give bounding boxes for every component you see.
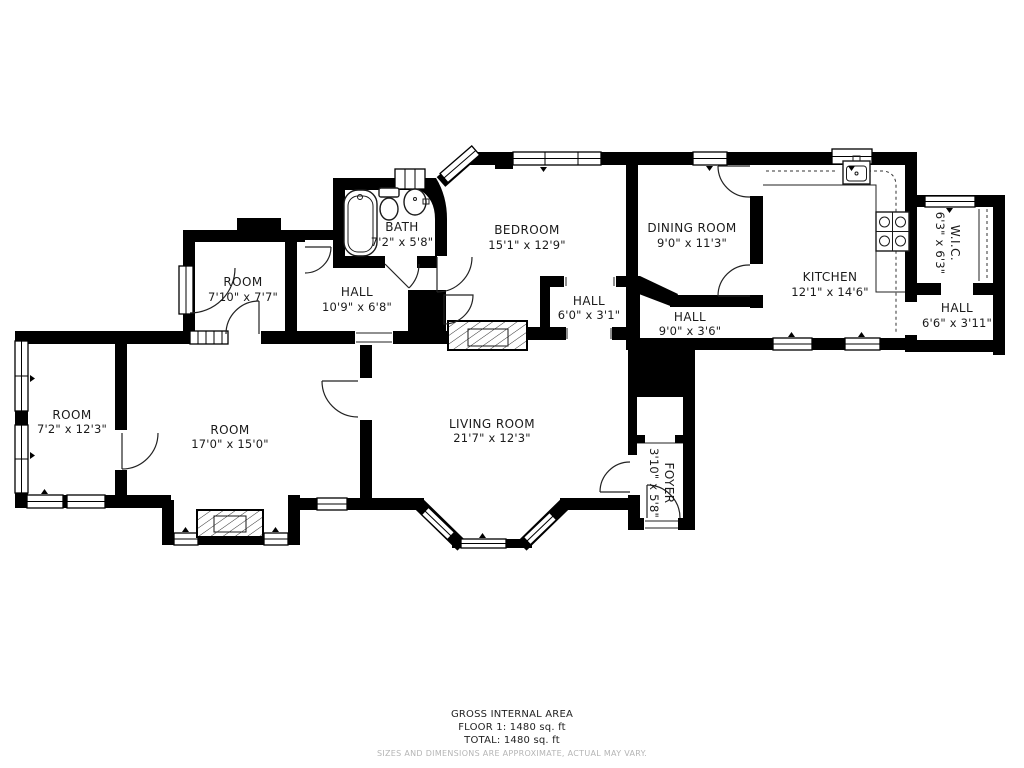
room-label-hall-mid: HALL 9'0" x 3'6" — [659, 310, 722, 338]
room-label-wic: W.I.C. 6'3" x 6'3" — [933, 212, 962, 275]
room-big-bay-window-1 — [174, 533, 198, 545]
room-upper-window — [179, 266, 193, 314]
living-bay-window-left — [422, 507, 455, 539]
room-name: ROOM — [223, 275, 262, 289]
room-name: W.I.C. — [948, 225, 962, 261]
room-dims: 17'0" x 15'0" — [191, 437, 269, 451]
room-name: HALL — [674, 310, 706, 324]
stove-icon — [876, 212, 909, 251]
room-name: DINING ROOM — [647, 221, 736, 235]
bedroom-door — [437, 257, 472, 292]
room-dims: 7'2" x 5'8" — [371, 235, 434, 249]
kitchen-counter — [763, 171, 905, 334]
room-name: ROOM — [52, 408, 91, 422]
room-name: KITCHEN — [803, 270, 858, 284]
gross-internal-area-label: GROSS INTERNAL AREA — [451, 709, 573, 720]
room-left-side-window-2 — [15, 425, 28, 493]
floor-area-value: FLOOR 1: 1480 sq. ft — [458, 722, 566, 733]
room-name: HALL — [941, 301, 973, 315]
room-name: LIVING ROOM — [449, 417, 535, 431]
living-foyer-door — [600, 462, 630, 492]
room-dims: 6'3" x 6'3" — [933, 212, 947, 275]
room-dims: 3'10" x 5'8" — [647, 448, 661, 518]
room-label-hall-center: HALL 6'0" x 3'1" — [558, 294, 621, 322]
room-left-bottom-window-1 — [27, 495, 63, 508]
room-dims: 15'1" x 12'9" — [488, 238, 566, 252]
bath-window — [395, 169, 425, 189]
room-big-door — [322, 381, 358, 417]
room-label-room-left: ROOM 7'2" x 12'3" — [37, 408, 107, 436]
room-upper-door — [226, 301, 259, 334]
room-dims: 6'0" x 3'1" — [558, 308, 621, 322]
room-label-room-big: ROOM 17'0" x 15'0" — [191, 423, 269, 451]
room-name: BEDROOM — [494, 223, 559, 237]
room-dims: 21'7" x 12'3" — [453, 431, 531, 445]
floor-plan: BATH 7'2" x 5'8" BEDROOM 15'1" x 12'9" D… — [0, 0, 1024, 768]
room-big-south-window — [317, 498, 347, 510]
dining-top-door — [718, 166, 750, 197]
wic-window — [925, 196, 975, 207]
dining-window — [693, 152, 727, 165]
room-label-room-upper: ROOM 7'10" x 7'7" — [208, 275, 278, 304]
room-label-foyer: FOYER 3'10" x 5'8" — [647, 448, 676, 518]
room-label-hall-east: HALL 6'6" x 3'11" — [922, 301, 992, 330]
footer: GROSS INTERNAL AREA FLOOR 1: 1480 sq. ft… — [377, 709, 647, 758]
room-dims: 10'9" x 6'8" — [322, 300, 392, 314]
room-name: BATH — [385, 220, 418, 234]
room-label-bath: BATH 7'2" x 5'8" — [371, 220, 434, 249]
toilet-icon — [379, 188, 399, 220]
room-dims: 7'2" x 12'3" — [37, 422, 107, 436]
window-ticks — [30, 166, 953, 538]
fireplace-living — [448, 321, 527, 350]
room-dims: 6'6" x 3'11" — [922, 316, 992, 330]
bedroom-bay-window — [513, 152, 601, 165]
room-label-bedroom: BEDROOM 15'1" x 12'9" — [488, 223, 566, 252]
kitchen-bottom-window-1 — [773, 338, 812, 350]
room-big-bay-window-2 — [264, 533, 288, 545]
room-dims: 12'1" x 14'6" — [791, 285, 869, 299]
disclaimer-text: SIZES AND DIMENSIONS ARE APPROXIMATE, AC… — [377, 749, 647, 758]
room-name: ROOM — [210, 423, 249, 437]
room-left-bottom-window-2 — [67, 495, 105, 508]
room-upper-radiator — [190, 331, 228, 344]
room-label-dining: DINING ROOM 9'0" x 11'3" — [647, 221, 736, 250]
kitchen-bottom-window-2 — [845, 338, 880, 350]
fireplace-room-big — [197, 510, 263, 537]
room-name: FOYER — [662, 463, 676, 504]
room-name: HALL — [341, 285, 373, 299]
room-dims: 7'10" x 7'7" — [208, 290, 278, 304]
dining-bottom-door — [718, 265, 750, 296]
room-label-hall-west: HALL 10'9" x 6'8" — [322, 285, 392, 314]
room-left-side-window-1 — [15, 341, 28, 411]
room-label-living: LIVING ROOM 21'7" x 12'3" — [449, 417, 535, 445]
living-bay-window-bottom — [461, 539, 506, 548]
room-name: HALL — [573, 294, 605, 308]
room-labels: BATH 7'2" x 5'8" BEDROOM 15'1" x 12'9" D… — [37, 212, 992, 518]
total-area-value: TOTAL: 1480 sq. ft — [463, 735, 560, 746]
living-bay-window-right — [524, 512, 557, 544]
bedroom-corner-fan-door — [444, 295, 473, 324]
foyer-closet — [637, 435, 683, 443]
room-left-door — [122, 433, 158, 469]
wic-closet-rail — [979, 209, 987, 281]
room-dims: 9'0" x 11'3" — [657, 236, 727, 250]
room-dims: 9'0" x 3'6" — [659, 324, 722, 338]
room-label-kitchen: KITCHEN 12'1" x 14'6" — [791, 270, 869, 299]
